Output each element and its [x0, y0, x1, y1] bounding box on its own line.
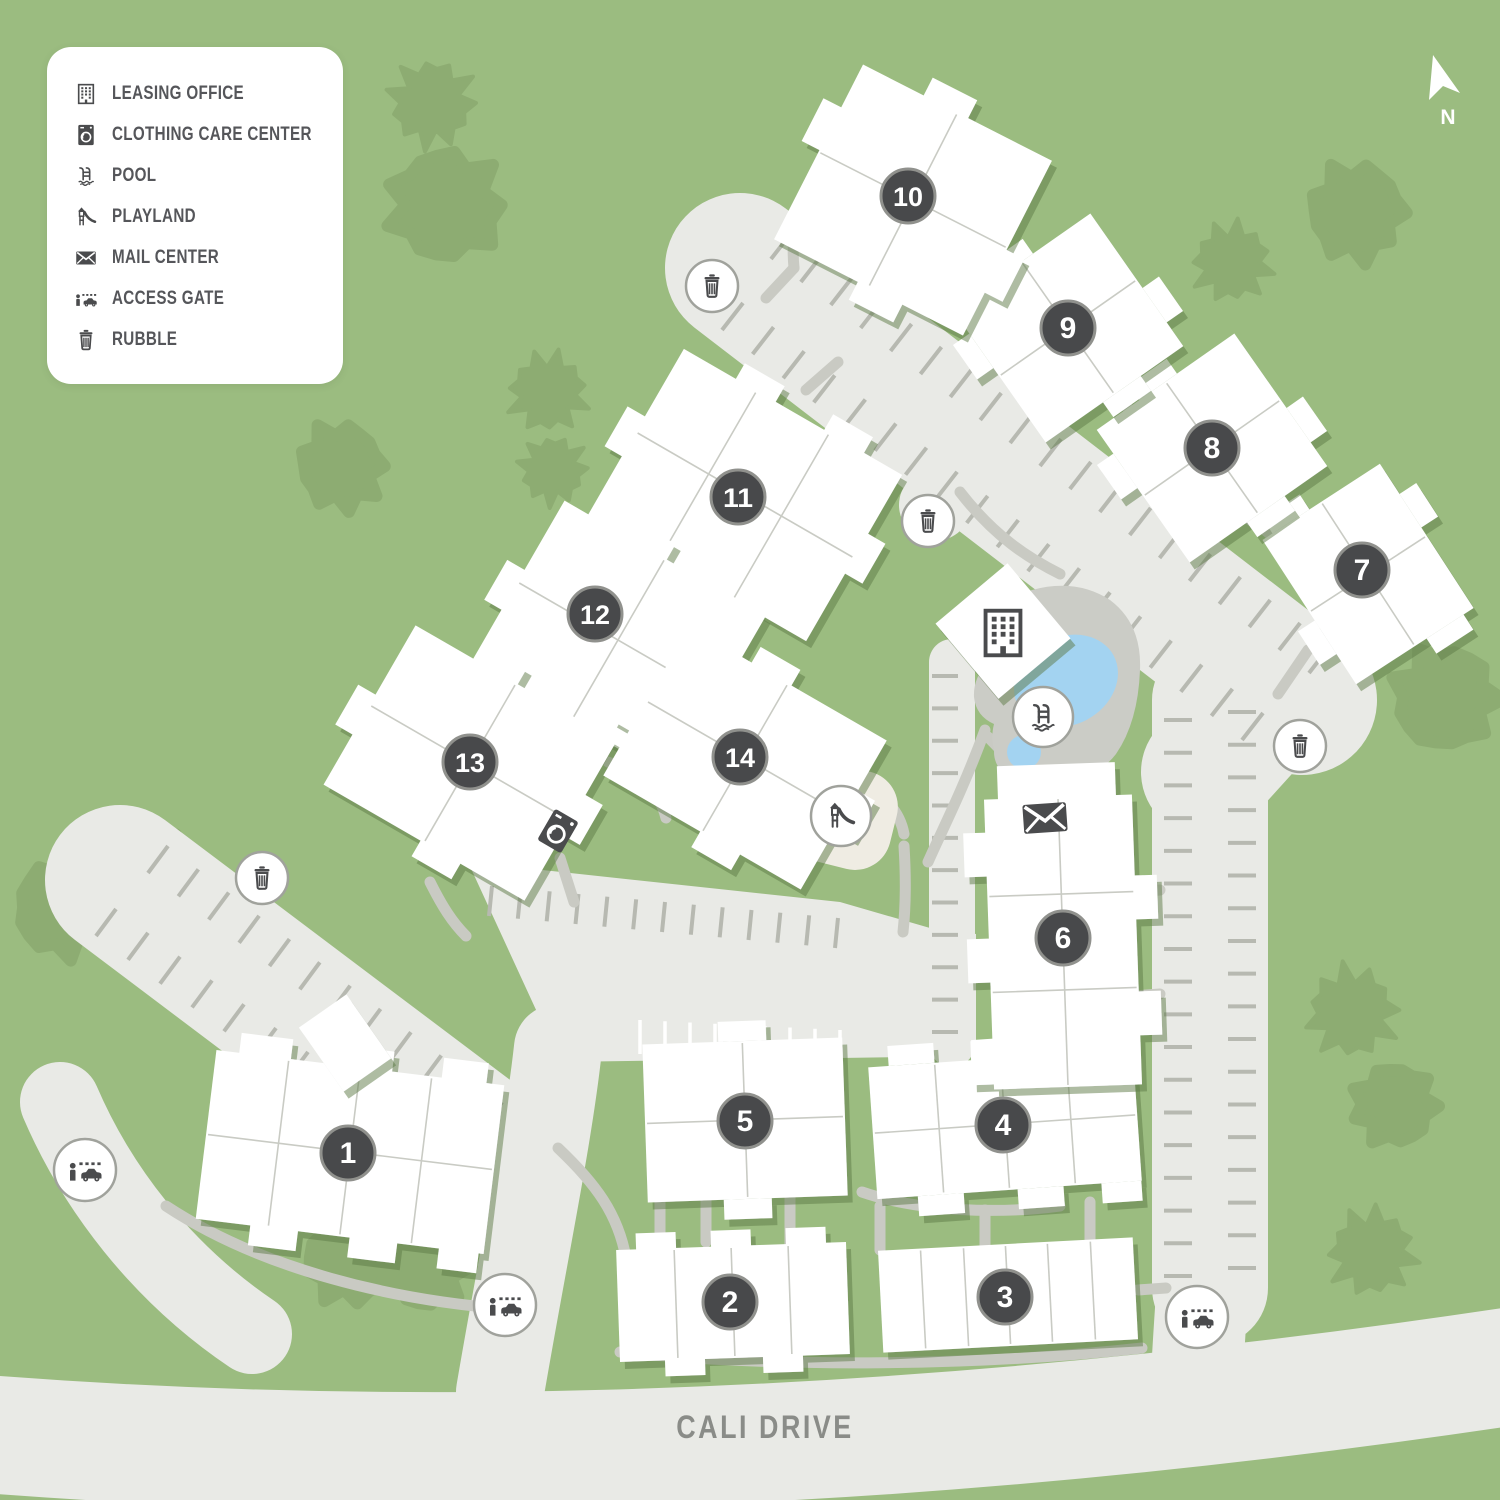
legend-item-access-gate: ACCESS GATE	[73, 278, 321, 319]
building-badge-11[interactable]: 11	[711, 470, 765, 524]
building-badge-3[interactable]: 3	[978, 1270, 1032, 1324]
clothing-care-icon	[73, 122, 99, 148]
badge-number: 9	[1060, 312, 1077, 345]
building-badge-13[interactable]: 13	[443, 735, 497, 789]
building-badge-4[interactable]: 4	[976, 1098, 1030, 1152]
legend-label: LEASING OFFICE	[112, 83, 244, 105]
legend-item-rubble: RUBBLE	[73, 319, 321, 360]
legend-label: PLAYLAND	[112, 206, 196, 228]
street-label-group: CALI DRIVE	[676, 1410, 854, 1446]
legend-label: POOL	[112, 165, 156, 187]
building-badge-2[interactable]: 2	[703, 1275, 757, 1329]
building-badge-14[interactable]: 14	[713, 730, 767, 784]
access-gate-marker[interactable]	[1166, 1286, 1228, 1348]
legend-item-leasing-office: LEASING OFFICE	[73, 73, 321, 114]
badge-number: 10	[893, 182, 923, 212]
street-label: CALI DRIVE	[676, 1410, 854, 1446]
badge-number: 13	[455, 748, 485, 778]
leasing-office-icon	[73, 81, 99, 107]
building-badge-9[interactable]: 9	[1041, 301, 1095, 355]
badge-number: 12	[580, 600, 610, 630]
legend-label: ACCESS GATE	[112, 288, 224, 310]
badge-number: 6	[1055, 922, 1072, 955]
rubble-marker[interactable]	[686, 260, 738, 312]
badge-number: 8	[1204, 432, 1221, 465]
parking-lot-connector	[1206, 688, 1282, 772]
badge-number: 1	[340, 1137, 357, 1170]
badge-number: 14	[725, 743, 755, 773]
access-gate-marker[interactable]	[474, 1274, 536, 1336]
building-badge-5[interactable]: 5	[718, 1094, 772, 1148]
marker-circle	[1166, 1286, 1228, 1348]
rubble-marker[interactable]	[1274, 720, 1326, 772]
site-map-page: 1234567891011121314 CALI DRIVE N LEASING…	[0, 0, 1500, 1500]
badge-number: 7	[1354, 554, 1371, 587]
marker-circle	[54, 1139, 116, 1201]
legend-item-pool: POOL	[73, 155, 321, 196]
mail-center-icon	[73, 245, 99, 271]
rubble-icon	[705, 274, 720, 296]
badge-number: 11	[723, 483, 753, 513]
mail-center-icon	[1022, 802, 1067, 834]
badge-number: 3	[997, 1281, 1014, 1314]
building-badge-1[interactable]: 1	[321, 1126, 375, 1180]
rubble-icon	[1293, 734, 1308, 756]
building-badge-12[interactable]: 12	[568, 587, 622, 641]
rubble-icon	[921, 509, 936, 531]
playland-icon	[73, 204, 99, 230]
legend-card: LEASING OFFICE CLOTHING CARE CENTER POOL…	[47, 47, 343, 384]
legend-item-clothing-care: CLOTHING CARE CENTER	[73, 114, 321, 155]
tree	[302, 425, 385, 512]
badge-number: 4	[995, 1109, 1012, 1142]
pool-marker[interactable]	[1013, 687, 1073, 747]
legend-label: RUBBLE	[112, 329, 177, 351]
walking-path	[1138, 1288, 1166, 1290]
mail-center-marker[interactable]	[1022, 802, 1067, 834]
legend-item-mail-center: MAIL CENTER	[73, 237, 321, 278]
rubble-icon	[255, 866, 270, 888]
walking-path	[903, 846, 905, 932]
rubble-marker[interactable]	[236, 852, 288, 904]
playland-marker[interactable]	[811, 786, 871, 846]
center-entrance-road	[500, 1048, 558, 1392]
building-badge-6[interactable]: 6	[1036, 911, 1090, 965]
legend-label: CLOTHING CARE CENTER	[112, 124, 312, 146]
badge-number: 5	[737, 1105, 754, 1138]
marker-circle	[474, 1274, 536, 1336]
north-label: N	[1440, 106, 1455, 129]
rubble-marker[interactable]	[902, 495, 954, 547]
building-badge-10[interactable]: 10	[881, 169, 935, 223]
building-badge-7[interactable]: 7	[1335, 543, 1389, 597]
legend-item-playland: PLAYLAND	[73, 196, 321, 237]
pool-icon	[73, 163, 99, 189]
building-badge-8[interactable]: 8	[1185, 421, 1239, 475]
badge-number: 2	[722, 1286, 739, 1319]
rubble-icon	[73, 327, 99, 353]
access-gate-marker[interactable]	[54, 1139, 116, 1201]
legend-label: MAIL CENTER	[112, 247, 219, 269]
access-gate-icon	[73, 286, 99, 312]
